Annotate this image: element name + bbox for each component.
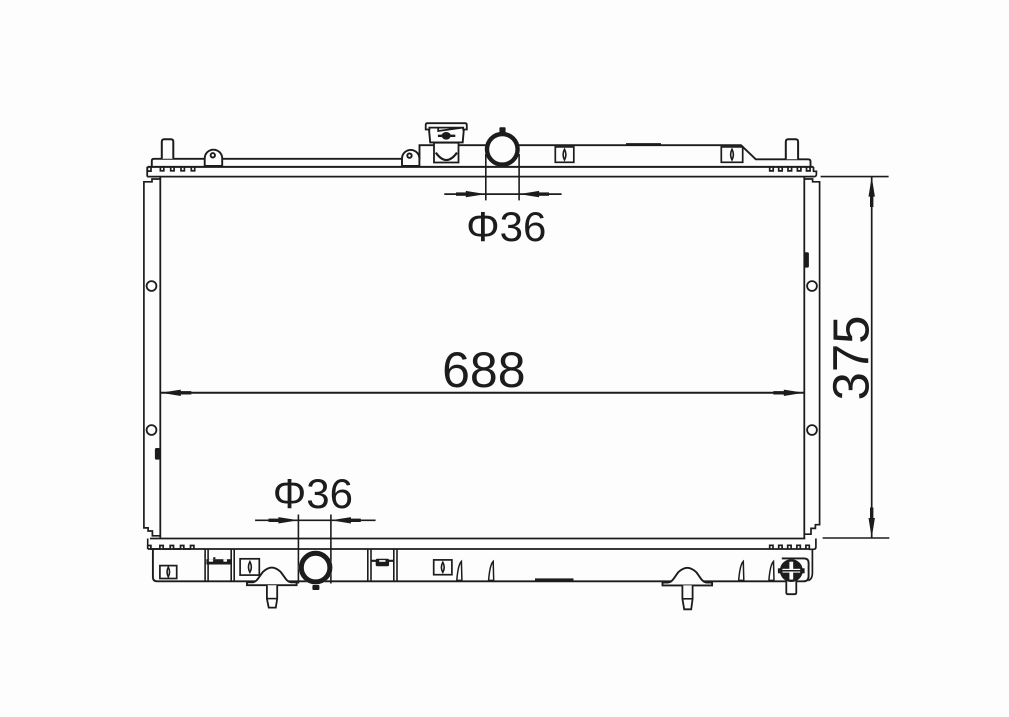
svg-text:Φ36: Φ36 xyxy=(466,203,546,250)
svg-text:Φ36: Φ36 xyxy=(273,470,353,517)
svg-text:688: 688 xyxy=(442,342,525,398)
svg-text:375: 375 xyxy=(822,315,879,400)
